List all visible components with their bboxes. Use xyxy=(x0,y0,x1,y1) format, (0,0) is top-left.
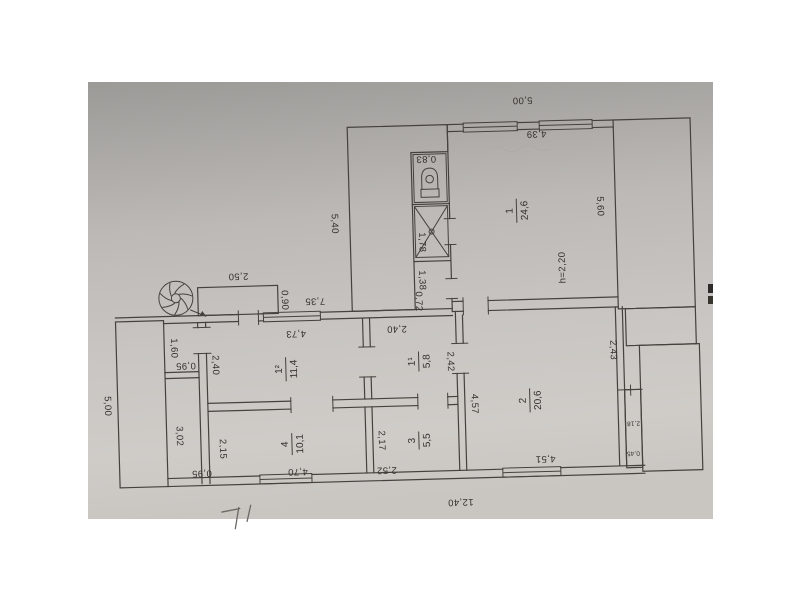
dim-corridor-3-02: 3,02 xyxy=(173,426,185,446)
dim-strip-0-45: 0,45 xyxy=(626,449,640,456)
room-area: 11,4 xyxy=(289,359,301,378)
dim-top-5-00: 5,00 xyxy=(512,94,532,106)
room-number: 1¹ xyxy=(407,356,418,366)
room-area: 10,1 xyxy=(295,434,307,454)
dim-room4-4-70: 4,70 xyxy=(288,466,308,478)
dim-pantry-1-60: 1,60 xyxy=(168,338,180,358)
room-area: 5,8 xyxy=(422,354,433,369)
room-area: 24,6 xyxy=(519,200,531,220)
dim-lobby-0-72: 0,72 xyxy=(413,291,425,311)
dim-room12-2-40: 2,40 xyxy=(209,355,221,375)
dim-room4-2-15: 2,15 xyxy=(217,439,229,459)
dim-lobby-1-38: 1,38 xyxy=(416,270,428,290)
room-area: 5,5 xyxy=(422,433,433,448)
dim-left-5-00: 5,00 xyxy=(102,396,114,416)
dim-shower-1-78: 1,78 xyxy=(416,232,428,252)
floor-plan-photo: 5,00 4,39 0,83 1,78 1,38 0,72 5,40 5,60 … xyxy=(0,0,800,600)
dim-corridor-0-95: 0,95 xyxy=(192,467,212,479)
dim-porch-2-50: 2,50 xyxy=(228,270,248,282)
room-number: 1² xyxy=(274,364,285,374)
room-number: 3 xyxy=(407,437,418,443)
dim-strip-2-18: 2,18 xyxy=(627,419,641,426)
dim-bottom-12-40: 12,40 xyxy=(448,496,474,508)
dim-room1-5-60: 5,60 xyxy=(594,196,606,216)
dim-room2-4-57: 4,57 xyxy=(469,394,481,414)
room-number: 2 xyxy=(518,397,529,403)
room-number: 1 xyxy=(504,208,515,214)
dim-room2-4-51: 4,51 xyxy=(535,453,555,465)
dim-mid-7-35: 7,35 xyxy=(305,295,325,307)
dim-room11-2-42: 2,42 xyxy=(444,351,456,371)
dim-right-2-43: 2,43 xyxy=(607,340,619,360)
dim-room3-2-17: 2,17 xyxy=(376,430,388,450)
room-area: 20,6 xyxy=(533,390,545,410)
dim-left-5-40: 5,40 xyxy=(329,214,341,234)
room-number: 4 xyxy=(280,441,291,447)
dim-height-note: h=2,20 xyxy=(557,251,569,283)
dim-pantry-0-95: 0,95 xyxy=(176,360,196,372)
scanned-floor-plan-photo-page: 5,00 4,39 0,83 1,78 1,38 0,72 5,40 5,60 … xyxy=(0,0,800,600)
dim-room12-4-73: 4,73 xyxy=(286,328,306,340)
dim-wc-0-83: 0,83 xyxy=(416,153,436,165)
dim-porch-0-90: 0,90 xyxy=(279,290,291,310)
dim-room11-2-40: 2,40 xyxy=(387,323,407,335)
dim-room3-2-52: 2,52 xyxy=(377,464,397,476)
dim-room1-4-39: 4,39 xyxy=(526,128,546,140)
